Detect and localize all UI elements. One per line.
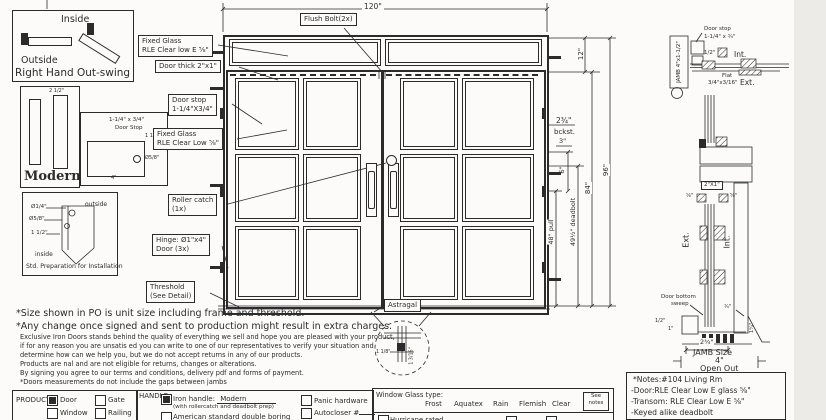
door-checkbox[interactable]	[47, 395, 58, 406]
section-right-frac: ⅝"	[730, 193, 737, 199]
section-half-dim: 1/2"	[655, 318, 665, 324]
window-option-label: Window	[60, 409, 88, 417]
panic-hardware-checkbox[interactable]	[301, 395, 312, 406]
note-line-1: *Notes:#104 Living Rm	[633, 375, 722, 384]
section-int-label: Int.	[723, 235, 732, 248]
note-line-4: -Keyed alike deadbolt	[631, 408, 713, 417]
doorstop-dim-dia: Ø5/8"	[145, 155, 159, 161]
dim-height-total: 96"	[602, 164, 610, 176]
hinge-mark	[542, 186, 546, 197]
jamb-doorstop-size: 1-1/4" x ¾"	[704, 34, 735, 40]
deadbolt-cylinder	[386, 155, 397, 166]
gate-option-label: Gate	[108, 396, 125, 404]
section-one-dim: 1"	[668, 326, 673, 332]
jamb-doorstop-label: Door stop	[704, 26, 731, 32]
section-left-frac: ⅝"	[686, 193, 693, 199]
product-section: PRODUCT: Door Gate Window Railing	[12, 390, 138, 420]
dim-astragal-width: 1 1/8"	[376, 350, 391, 355]
iron-handle-note: (with rollercatch and deadbolt prep)	[173, 404, 274, 410]
callout-text: RLE Clear low E ⅝"	[142, 46, 209, 55]
iron-handle-value[interactable]: Modern	[217, 395, 276, 404]
hinge-mark	[220, 262, 224, 273]
swing-inside-label: Inside	[61, 14, 89, 25]
callout-text: 2"X1"	[704, 182, 720, 188]
prep-outside-label: outside	[85, 201, 107, 208]
doorstop-dim-width: 4"	[111, 175, 116, 181]
sweep-label-1: Door bottom	[661, 294, 696, 300]
callout-text: Threshold	[150, 283, 191, 292]
callout-roller-catch: Roller catch (1x)	[168, 194, 217, 216]
railing-option-label: Railing	[108, 409, 132, 417]
hinge-mark	[542, 262, 546, 273]
hinge-mark	[220, 186, 224, 197]
dim-backset: 2¾"	[556, 116, 572, 125]
autocloser-checkbox[interactable]	[301, 408, 312, 419]
doorstop-detail-label2: Door Stop	[115, 125, 142, 131]
glass-option-frost: Frost	[425, 400, 442, 408]
dim-door-height: 84"	[584, 182, 592, 194]
callout-threshold: Threshold (See Detail)	[146, 281, 195, 303]
callout-door-stop: Door stop 1-1/4"X3/4"	[168, 94, 217, 116]
jamb-size-label: JAMB Size	[693, 348, 732, 357]
swing-outside-label: Outside	[21, 55, 58, 66]
callout-text: (1x)	[172, 205, 213, 214]
prep-caption: Std. Preparation for Installation	[26, 263, 123, 270]
window-checkbox[interactable]	[47, 408, 58, 419]
glass-option-clear: Clear	[552, 400, 570, 408]
glass-pane	[462, 226, 534, 300]
glass-pane	[462, 154, 534, 222]
american-boring-label: American standard double boring	[173, 413, 290, 420]
callout-text: Astragal	[388, 301, 417, 309]
jamb-depth-dim: 2¾"	[699, 338, 714, 346]
glass-extra-checkbox[interactable]	[506, 416, 517, 420]
closed-door-icon	[28, 37, 72, 46]
glass-pane	[235, 154, 299, 222]
swing-diagram-box: Inside Outside Right Hand Out-swing	[12, 10, 134, 82]
callout-flush-bolt: Flush Bolt(2x)	[300, 13, 357, 26]
jamb-ext-label: Ext.	[740, 78, 755, 87]
jamb-plan-label: JAMB 4"x1-1/2"	[676, 41, 682, 83]
handle-style-title: Modern	[24, 169, 81, 184]
callout-text: 1-1/4"X3/4"	[172, 105, 213, 114]
glass-pane	[400, 78, 458, 150]
std-prep-box: Ø1/4" Ø5/8" 1 1/2" outside inside Std. P…	[22, 192, 118, 276]
transom-glass-left	[229, 39, 381, 66]
hinge-jamb-icon	[21, 33, 28, 45]
prep-dia-small: Ø1/4"	[31, 204, 47, 210]
order-notes-box: *Notes:#104 Living Rm -Door:RLE Clear Lo…	[626, 372, 786, 420]
handle-section: HANDLE Iron handle: Modern (with rollerc…	[136, 390, 374, 420]
see-notes-text: notes	[584, 401, 608, 406]
autocloser-label: Autocloser #	[314, 409, 375, 417]
note-line-3: -Transom: RLE Clear Low E ⅝"	[631, 397, 745, 406]
open-door-icon	[78, 33, 120, 64]
weatherstrip-dashed	[230, 74, 376, 76]
autocloser-text: Autocloser #	[314, 409, 359, 417]
iron-handle-checkbox[interactable]	[161, 394, 172, 405]
shop-drawing-page: Inside Outside Right Hand Out-swing 2 1/…	[0, 0, 826, 420]
callout-text: Roller catch	[172, 196, 213, 205]
section-onequarter-dim: 1¼"	[749, 323, 755, 333]
prep-dim: 1 1/2"	[31, 230, 48, 236]
callout-text: Door stop	[172, 96, 213, 105]
transom-glass-right	[385, 39, 542, 66]
prep-inside-label: inside	[35, 251, 53, 258]
dim-6in: 6"	[558, 166, 566, 173]
dim-3in: 3"	[559, 137, 566, 145]
hinge-mark	[220, 108, 224, 119]
handle-drawing	[29, 99, 41, 165]
jamb-int-label: Int.	[734, 50, 746, 59]
glass-option-aquatex: Aquatex	[454, 400, 483, 408]
railing-checkbox[interactable]	[95, 408, 106, 419]
glass-pane	[462, 78, 534, 150]
callout-text: RLE Clear Low ⅝"	[157, 139, 219, 148]
section-ext-label: Ext.	[682, 232, 691, 247]
jamb-size-swing: Open Out	[700, 364, 738, 373]
callout-fixed-glass-door: Fixed Glass RLE Clear Low ⅝"	[153, 128, 223, 150]
callout-text: Flush Bolt(2x)	[304, 15, 353, 23]
sweep-label-2: sweep	[671, 301, 689, 307]
glass-pane	[400, 226, 458, 300]
pull-handle	[368, 171, 375, 209]
callout-text: Fixed Glass	[157, 130, 219, 139]
american-boring-checkbox[interactable]	[161, 412, 172, 420]
callout-text: Fixed Glass	[142, 37, 209, 46]
glass-type-label: Window Glass type:	[376, 391, 443, 399]
glass-pane	[400, 154, 458, 222]
hurricane-label: Hurricane rated	[390, 416, 443, 420]
callout-text: Door thick 2"x1"	[159, 62, 217, 70]
callout-astragal: Astragal	[384, 299, 421, 312]
hinge-mark	[542, 108, 546, 119]
glass-pane	[235, 226, 299, 300]
glass-pane	[303, 154, 361, 222]
dim-width-total: 120"	[362, 2, 384, 11]
callout-text: (See Detail)	[150, 292, 191, 301]
panic-hardware-label: Panic hardware	[314, 397, 368, 405]
jamb-flat-label: Flat	[722, 73, 732, 79]
glass-section-divider	[373, 412, 613, 413]
modern-handle-box: 2 1/2" Modern	[20, 86, 80, 188]
hinge-jamb-icon	[87, 23, 94, 35]
dim-deadbolt-height: 49½" deadbolt	[569, 198, 577, 246]
handle-dim-label: 2 1/2"	[49, 88, 64, 94]
swing-caption: Right Hand Out-swing	[15, 67, 130, 79]
handle-drawing	[53, 95, 68, 169]
see-notes-badge[interactable]: See notes	[583, 392, 609, 411]
note-line-2: -Door:RLE Clear Low E glass ⅝"	[631, 386, 751, 395]
gate-checkbox[interactable]	[95, 395, 106, 406]
glass-option-flemish: Flemish	[519, 400, 546, 408]
glass-option-rain: Rain	[493, 400, 508, 408]
door-option-label: Door	[60, 396, 77, 404]
jamb-half-dim: 1/2"	[704, 50, 715, 56]
callout-text: Hinge: Ø1"x4"	[156, 236, 206, 245]
dim-pull-height: 48" pull	[547, 219, 555, 244]
callout-fixed-glass-transom: Fixed Glass RLE Clear low E ⅝"	[138, 35, 213, 57]
callout-text: Door (3x)	[156, 245, 206, 254]
glass-pane	[303, 78, 361, 150]
section-threequarter-dim: ¾"	[724, 304, 731, 310]
doorstop-detail-label: 1-1/4" x 3/4"	[109, 117, 144, 123]
dim-backset-label: bckst.	[554, 128, 575, 136]
iron-handle-text: Iron handle:	[173, 395, 215, 403]
glass-pane	[235, 78, 299, 150]
callout-hinge: Hinge: Ø1"x4" Door (3x)	[152, 234, 210, 256]
pull-handle	[390, 171, 397, 209]
doorstop-hole	[133, 155, 141, 163]
glass-pane	[303, 226, 361, 300]
callout-door-thick: Door thick 2"x1"	[155, 60, 221, 73]
jamb-flat-size: 3/4"x3/16"	[708, 80, 738, 86]
section-tube-label: 2"X1"	[701, 181, 723, 190]
hurricane-checkbox[interactable]	[378, 415, 389, 420]
dim-astragal-depth: 1 3/16"	[410, 347, 415, 365]
weatherstrip-dashed	[386, 74, 538, 76]
glass-type-section: Window Glass type: Frost Aquatex Rain Fl…	[372, 388, 614, 420]
glass-extra-checkbox[interactable]	[546, 416, 557, 420]
prep-dia-big: Ø5/8"	[29, 216, 45, 222]
dim-transom: 12"	[577, 48, 585, 60]
iron-handle-label: Iron handle: Modern	[173, 395, 276, 404]
